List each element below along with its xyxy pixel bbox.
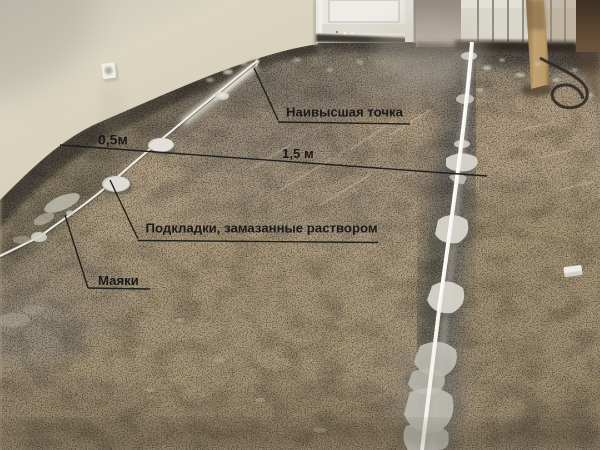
svg-text:Маяки: Маяки bbox=[98, 273, 139, 288]
svg-text:1,5 м: 1,5 м bbox=[282, 146, 314, 161]
svg-text:Подкладки, замазанные растворо: Подкладки, замазанные раствором bbox=[146, 221, 378, 236]
svg-text:0,5м: 0,5м bbox=[98, 132, 128, 148]
svg-text:Наивысшая точка: Наивысшая точка bbox=[286, 104, 404, 119]
